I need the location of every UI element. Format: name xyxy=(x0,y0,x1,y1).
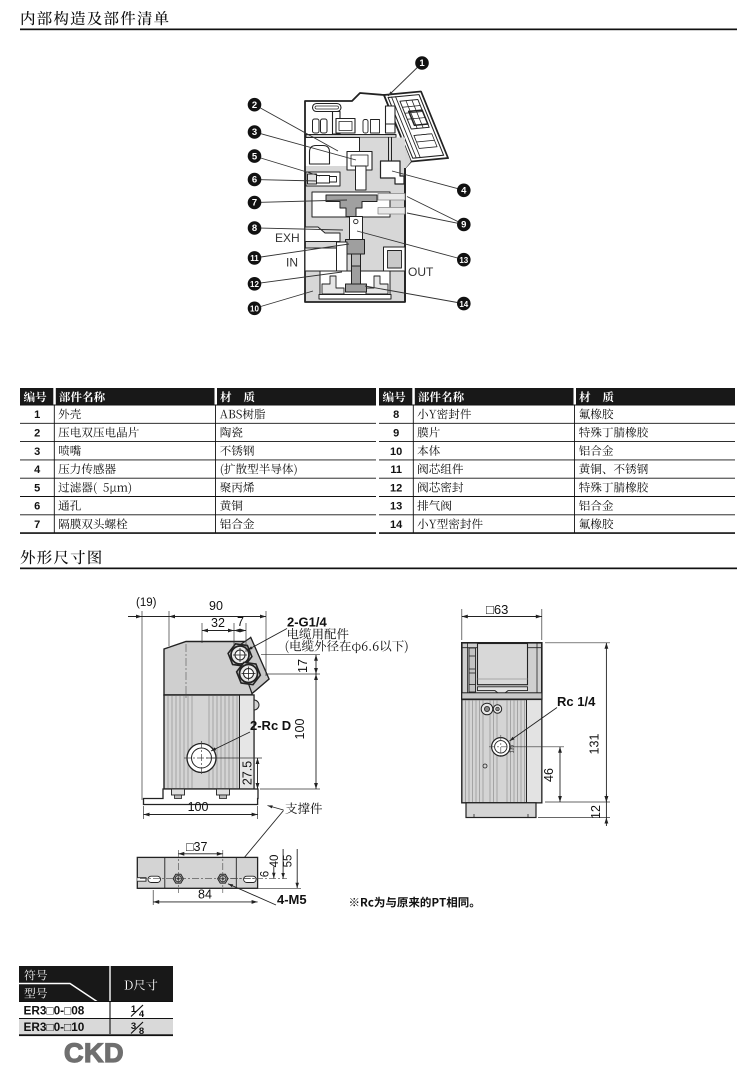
svg-text:4: 4 xyxy=(461,186,467,197)
svg-text:7: 7 xyxy=(34,519,40,531)
svg-text:7: 7 xyxy=(252,198,257,209)
svg-text:9: 9 xyxy=(393,427,399,439)
svg-text:EXH: EXH xyxy=(275,231,300,245)
svg-text:2-Rc D: 2-Rc D xyxy=(250,718,291,733)
svg-text:(19): (19) xyxy=(136,597,157,609)
svg-text:10: 10 xyxy=(250,305,259,314)
svg-text:40: 40 xyxy=(269,855,281,868)
svg-text:32: 32 xyxy=(211,616,225,630)
svg-text:100: 100 xyxy=(293,719,307,740)
svg-text:13: 13 xyxy=(390,501,402,513)
svg-text:17: 17 xyxy=(296,659,310,673)
svg-text:6: 6 xyxy=(34,501,40,513)
svg-text:55: 55 xyxy=(283,855,295,868)
svg-text:3: 3 xyxy=(34,446,40,458)
svg-text:27.5: 27.5 xyxy=(241,761,255,785)
svg-text:12: 12 xyxy=(390,482,402,494)
svg-text:IN: IN xyxy=(286,256,298,270)
svg-text:13: 13 xyxy=(459,256,468,265)
svg-text:1: 1 xyxy=(34,409,40,421)
svg-text:CKD: CKD xyxy=(64,1038,124,1068)
svg-text:131: 131 xyxy=(588,734,602,755)
svg-text:Rc 1/4: Rc 1/4 xyxy=(557,694,596,709)
svg-text:6: 6 xyxy=(260,871,272,877)
svg-text:90: 90 xyxy=(209,599,223,613)
svg-text:5: 5 xyxy=(252,151,258,162)
svg-text:8: 8 xyxy=(393,409,399,421)
svg-text:100: 100 xyxy=(188,800,209,814)
svg-text:14: 14 xyxy=(459,300,468,309)
svg-text:2-G1/4: 2-G1/4 xyxy=(287,615,328,630)
svg-text:2: 2 xyxy=(252,100,257,111)
svg-text:□63: □63 xyxy=(486,602,508,617)
svg-text:2: 2 xyxy=(34,427,40,439)
svg-text:6: 6 xyxy=(252,175,257,186)
svg-text:4-M5: 4-M5 xyxy=(277,892,307,907)
svg-text:9: 9 xyxy=(461,220,466,231)
svg-text:10: 10 xyxy=(390,446,402,458)
svg-text:7: 7 xyxy=(237,615,244,629)
svg-text:12: 12 xyxy=(250,280,259,289)
svg-text:OUT: OUT xyxy=(408,265,434,279)
svg-text:84: 84 xyxy=(198,888,212,902)
svg-text:1: 1 xyxy=(419,58,425,69)
svg-text:11: 11 xyxy=(250,254,259,263)
svg-text:5: 5 xyxy=(34,482,40,494)
svg-text:□37: □37 xyxy=(186,840,208,854)
svg-text:14: 14 xyxy=(390,519,403,531)
svg-text:11: 11 xyxy=(390,464,402,476)
svg-text:ER3□0-□08: ER3□0-□08 xyxy=(24,1004,85,1018)
svg-text:3: 3 xyxy=(252,127,257,138)
svg-text:8: 8 xyxy=(252,223,257,234)
svg-text:ER3□0-□10: ER3□0-□10 xyxy=(24,1020,85,1034)
svg-text:46: 46 xyxy=(542,768,556,782)
svg-text:12: 12 xyxy=(589,805,603,819)
svg-text:4: 4 xyxy=(34,464,41,476)
svg-text:135: 135 xyxy=(510,745,516,754)
